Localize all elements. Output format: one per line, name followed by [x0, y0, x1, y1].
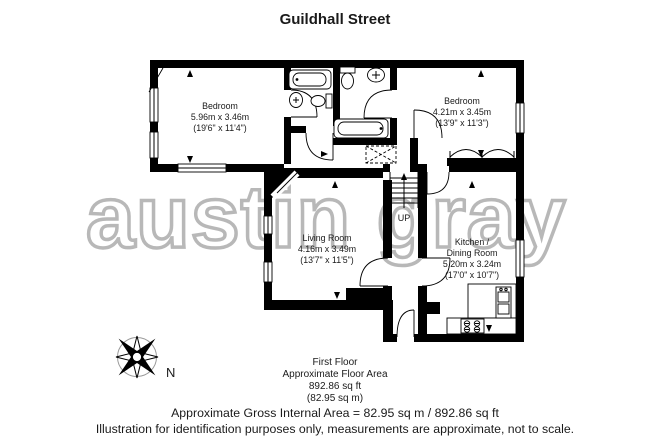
room-dim-metric: 5.96m x 3.46m	[191, 112, 249, 122]
compass-rose: N	[116, 336, 175, 380]
floor-area-ft: 892.86 sq ft	[309, 381, 361, 392]
bath-icon	[289, 70, 331, 89]
window	[150, 88, 158, 122]
window	[516, 240, 524, 277]
sink-icon	[368, 68, 385, 82]
window	[264, 262, 272, 282]
room-name-line2: Dining Room	[447, 248, 498, 258]
room-name: Bedroom	[444, 96, 480, 106]
window	[150, 132, 158, 158]
window	[178, 164, 226, 172]
room-dim-metric: 5.20m x 3.24m	[443, 259, 501, 269]
room-dim-imperial: (19'6" x 11'4")	[193, 123, 247, 133]
room-name: Living Room	[303, 233, 352, 243]
room-dim-imperial: (17'0" x 10'7")	[445, 270, 499, 280]
door-arc	[364, 90, 392, 118]
door-arc	[397, 310, 414, 337]
floorplan-canvas: austin gray	[0, 0, 670, 447]
page-title: Guildhall Street	[280, 11, 391, 28]
room-name: Bedroom	[202, 101, 238, 111]
north-label: N	[166, 365, 175, 380]
room-dim-imperial: (13'9" x 11'3")	[435, 118, 489, 128]
floor-area-title: Approximate Floor Area	[282, 369, 387, 380]
hob-icon	[461, 319, 484, 333]
stairs-up-label: UP	[398, 213, 411, 223]
floor-name: First Floor	[313, 357, 359, 368]
floor-area-m: (82.95 sq m)	[307, 393, 363, 404]
sink-unit-icon	[496, 287, 511, 318]
gross-area-line: Approximate Gross Internal Area = 82.95 …	[171, 406, 499, 420]
disclaimer-line: Illustration for identification purposes…	[96, 422, 574, 436]
room-dim-metric: 4.16m x 3.49m	[298, 244, 356, 254]
room-dim-metric: 4.21m x 3.45m	[433, 107, 491, 117]
bath-icon	[334, 119, 388, 138]
toilet-icon	[311, 94, 332, 108]
room-name-line1: Kitchen /	[455, 237, 490, 247]
door-arc	[306, 133, 333, 160]
toilet-icon	[340, 67, 355, 89]
bedroom1-label: Bedroom 5.96m x 3.46m (19'6" x 11'4")	[191, 101, 249, 133]
floorplan-page: austin gray	[0, 0, 670, 447]
floor-summary: First Floor Approximate Floor Area 892.8…	[282, 357, 387, 404]
window	[264, 216, 272, 234]
storage-box	[366, 146, 396, 163]
bedroom2-label: Bedroom 4.21m x 3.45m (13'9" x 11'3")	[433, 96, 491, 128]
living-room-label: Living Room 4.16m x 3.49m (13'7" x 11'5"…	[298, 233, 356, 265]
window	[516, 103, 524, 133]
sink-icon	[290, 93, 303, 108]
room-dim-imperial: (13'7" x 11'5")	[300, 255, 354, 265]
footer: Approximate Gross Internal Area = 82.95 …	[96, 406, 574, 436]
